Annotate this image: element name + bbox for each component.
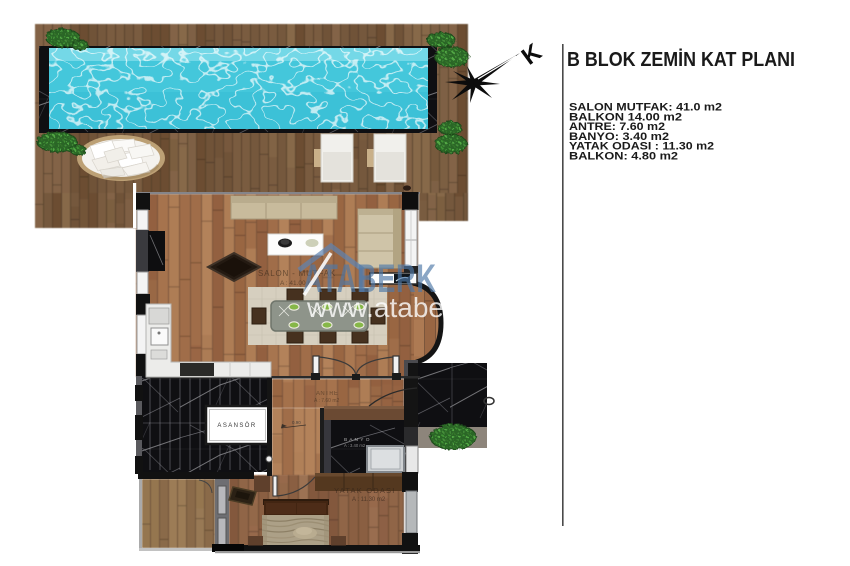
svg-text:YATAK ODASI: YATAK ODASI bbox=[334, 486, 396, 495]
svg-text:ANTRE: ANTRE bbox=[316, 391, 338, 397]
svg-text:A : 11.30 m2: A : 11.30 m2 bbox=[352, 497, 386, 503]
svg-text:B BLOK ZEMİN KAT PLANI: B BLOK ZEMİN KAT PLANI bbox=[567, 48, 795, 71]
svg-text:0.90: 0.90 bbox=[292, 420, 301, 425]
svg-text:A : 3.40 m2: A : 3.40 m2 bbox=[344, 443, 366, 448]
svg-text:www.ataberk.com: www.ataberk.com bbox=[306, 292, 528, 323]
svg-text:A : 7.60 m2: A : 7.60 m2 bbox=[314, 398, 340, 404]
svg-text:ASANSÖR: ASANSÖR bbox=[217, 422, 256, 429]
svg-text:BALKON: 4.80 m2: BALKON: 4.80 m2 bbox=[569, 151, 678, 163]
